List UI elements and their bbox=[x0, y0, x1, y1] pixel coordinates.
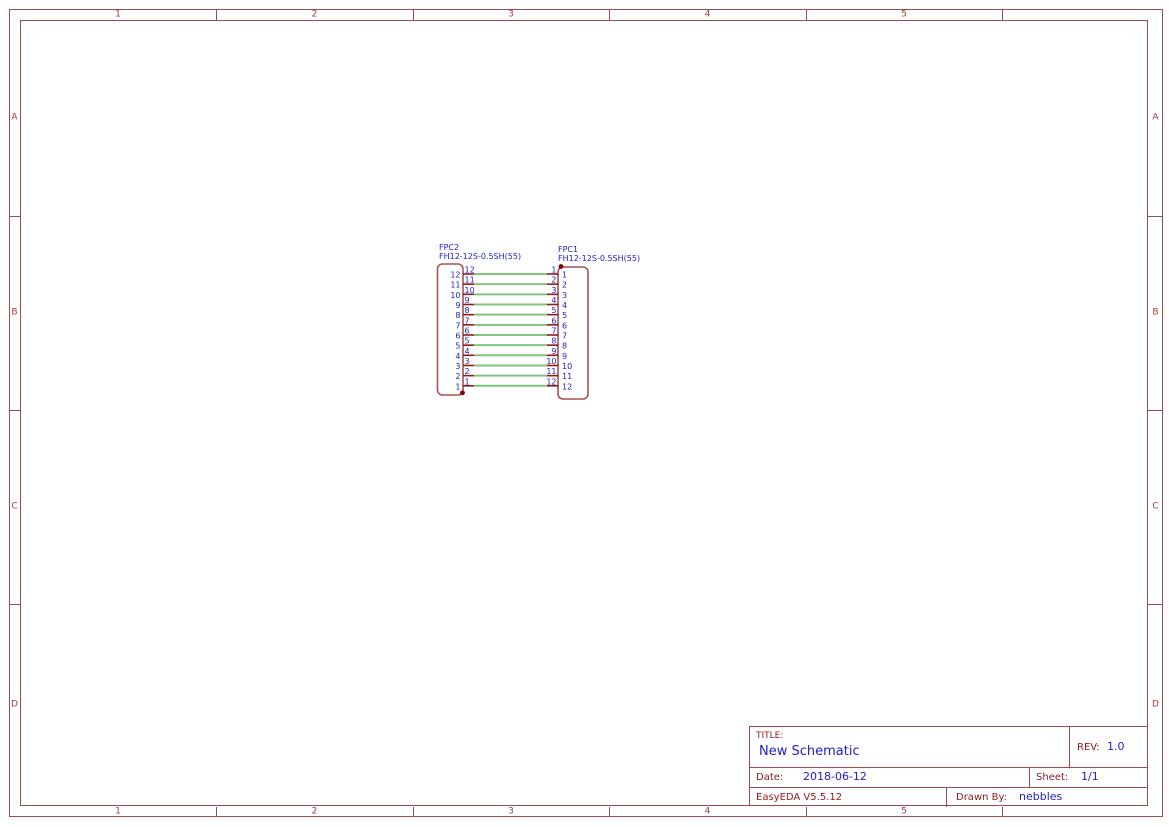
title-block-divider bbox=[1029, 767, 1030, 787]
pin-number: 2 bbox=[455, 372, 460, 381]
pin-name: 10 bbox=[465, 286, 475, 295]
pin-number: 7 bbox=[455, 321, 460, 330]
component-value-fpc2[interactable]: FH12-12S-0.5SH(55) bbox=[439, 252, 521, 261]
pin-number: 8 bbox=[455, 311, 460, 320]
pin-number: 1 bbox=[455, 382, 460, 391]
pin-name: 2 bbox=[465, 367, 470, 376]
title-block-divider bbox=[750, 787, 1147, 788]
pin-name: 3 bbox=[562, 291, 567, 300]
pin-name: 6 bbox=[465, 326, 470, 335]
title-block-divider bbox=[946, 787, 947, 807]
title-block-divider bbox=[1069, 727, 1070, 767]
pin-name: 8 bbox=[465, 306, 470, 315]
component-value-fpc1[interactable]: FH12-12S-0.5SH(55) bbox=[558, 254, 640, 263]
pin-name: 5 bbox=[465, 337, 470, 346]
pin-name: 8 bbox=[562, 342, 567, 351]
pin-number: 8 bbox=[551, 337, 556, 346]
pin-number: 12 bbox=[450, 271, 460, 280]
pin-name: 1 bbox=[465, 377, 470, 386]
date-value[interactable]: 2018-06-12 bbox=[803, 771, 867, 784]
pin-number: 4 bbox=[455, 352, 460, 361]
pin-number: 6 bbox=[551, 316, 556, 325]
pin-number: 9 bbox=[455, 301, 460, 310]
title-label: TITLE: bbox=[756, 731, 783, 741]
pin-number: 10 bbox=[450, 291, 460, 300]
pin-name: 12 bbox=[562, 382, 572, 391]
schematic-sheet: 1122334455AABBCCDD FPC2FH12-12S-0.5SH(55… bbox=[0, 0, 1169, 827]
pin-name: 3 bbox=[465, 357, 470, 366]
pin-number: 1 bbox=[551, 266, 556, 275]
pin-name: 9 bbox=[562, 352, 567, 361]
pin-number: 9 bbox=[551, 347, 556, 356]
pin-number: 3 bbox=[455, 362, 460, 371]
schematic-canvas: FPC2FH12-12S-0.5SH(55)121211111010998877… bbox=[0, 0, 1169, 827]
pin-number: 6 bbox=[455, 331, 460, 340]
pin-number: 11 bbox=[546, 367, 556, 376]
pin-name: 9 bbox=[465, 296, 470, 305]
pin-name: 4 bbox=[465, 347, 470, 356]
pin-name: 5 bbox=[562, 311, 567, 320]
pin-number: 5 bbox=[455, 342, 460, 351]
pin-name: 11 bbox=[465, 276, 475, 285]
pin-name: 7 bbox=[465, 316, 470, 325]
anchor-dot-fpc2 bbox=[460, 390, 465, 395]
pin-number: 2 bbox=[551, 276, 556, 285]
pin-number: 12 bbox=[546, 377, 556, 386]
pin-number: 7 bbox=[551, 326, 556, 335]
sheet-value[interactable]: 1/1 bbox=[1081, 771, 1099, 784]
title-value[interactable]: New Schematic bbox=[759, 745, 860, 760]
rev-label: REV: bbox=[1077, 742, 1100, 754]
pin-number: 5 bbox=[551, 306, 556, 315]
pin-number: 4 bbox=[551, 296, 556, 305]
pin-name: 11 bbox=[562, 372, 572, 381]
pin-number: 11 bbox=[450, 281, 460, 290]
title-block-divider bbox=[750, 767, 1147, 768]
pin-number: 10 bbox=[546, 357, 556, 366]
pin-name: 1 bbox=[562, 271, 567, 280]
pin-number: 3 bbox=[551, 286, 556, 295]
pin-name: 12 bbox=[465, 266, 475, 275]
pin-name: 6 bbox=[562, 321, 567, 330]
pin-name: 2 bbox=[562, 281, 567, 290]
pin-name: 7 bbox=[562, 331, 567, 340]
component-ref-fpc2[interactable]: FPC2 bbox=[439, 243, 459, 252]
component-ref-fpc1[interactable]: FPC1 bbox=[558, 245, 578, 254]
drawn-by-value[interactable]: nebbles bbox=[1019, 791, 1062, 804]
drawn-by-label: Drawn By: bbox=[956, 792, 1007, 804]
sheet-label: Sheet: bbox=[1036, 772, 1068, 784]
anchor-dot-fpc1 bbox=[559, 264, 564, 269]
title-block: TITLE: New Schematic REV: 1.0 Date: 2018… bbox=[749, 726, 1148, 806]
date-label: Date: bbox=[756, 772, 783, 784]
pin-name: 10 bbox=[562, 362, 572, 371]
pin-name: 4 bbox=[562, 301, 567, 310]
rev-value[interactable]: 1.0 bbox=[1107, 741, 1125, 754]
software-version: EasyEDA V5.5.12 bbox=[756, 792, 842, 804]
